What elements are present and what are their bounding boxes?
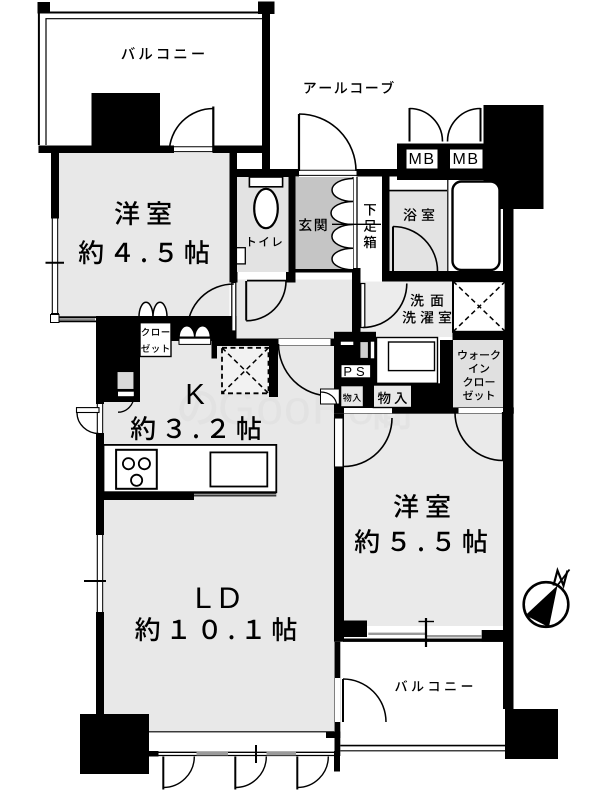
svg-text:LD: LD — [195, 582, 247, 615]
svg-text:MB: MB — [453, 151, 480, 168]
svg-text:K: K — [185, 379, 205, 411]
svg-text:MB: MB — [409, 151, 436, 168]
svg-text:PS: PS — [343, 364, 368, 379]
